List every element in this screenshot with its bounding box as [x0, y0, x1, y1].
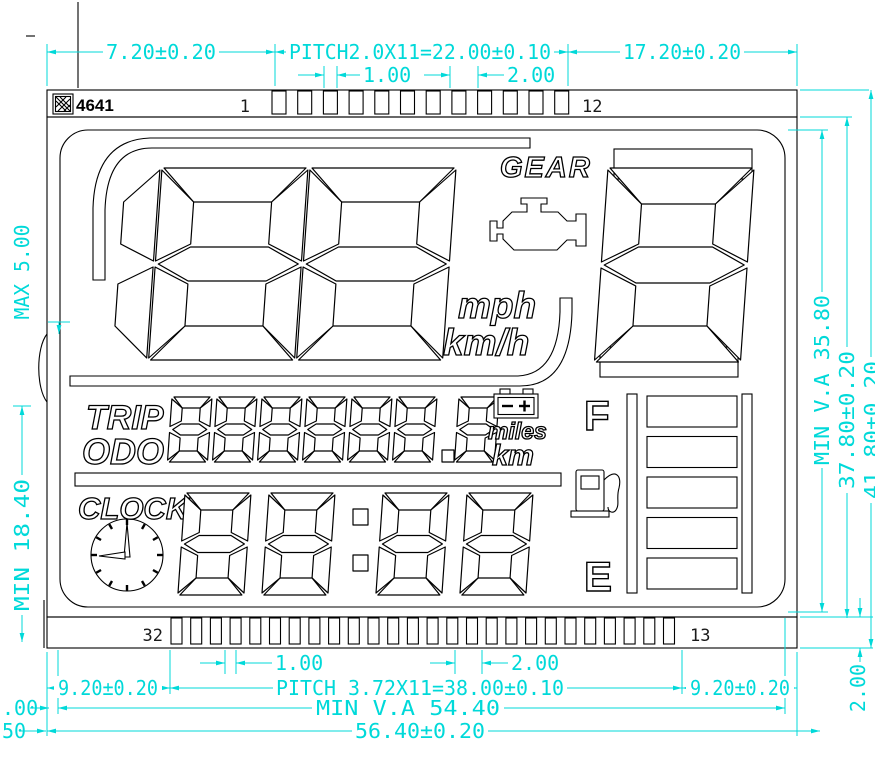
connector-pad — [407, 618, 418, 644]
fuel-rail-right — [742, 394, 752, 593]
seven-segment-digit — [347, 397, 392, 462]
connector-pad — [565, 618, 576, 644]
segment — [157, 247, 299, 281]
segment — [184, 536, 245, 553]
clock-tick — [109, 581, 112, 586]
unit-km-label: km — [492, 440, 534, 472]
connector-pad — [478, 91, 492, 114]
connector-pad — [323, 91, 337, 114]
seven-segment-digit — [257, 397, 302, 462]
dim-left-min: MIN 18.40 — [10, 475, 34, 615]
fuel-bar — [647, 477, 737, 508]
dim-top-pad-pitch: 2.00 — [507, 63, 555, 87]
dim-right-va: MIN V.A 35.80 — [810, 292, 834, 468]
colon-dot — [353, 555, 368, 571]
fuel-gauge: F E — [571, 392, 752, 600]
bottom-pin-row: 32 13 — [143, 618, 711, 646]
frame-remnant — [26, 2, 78, 88]
connector-pad — [230, 618, 241, 644]
seven-segment-digit — [392, 397, 437, 462]
dim-bottom-left-margin: 9.20±0.20 — [54, 676, 162, 700]
odo-label: ODO — [82, 431, 164, 472]
dim-bottom-right-margin: 9.20±0.20 — [686, 676, 794, 700]
seven-segment-digit — [262, 493, 335, 595]
fuel-full-label: F — [584, 392, 610, 439]
connector-pad — [349, 91, 363, 114]
pin-number-32: 32 — [143, 626, 163, 646]
connector-pad — [401, 91, 415, 114]
divider-bar — [75, 473, 561, 486]
odometer-digits — [167, 397, 499, 462]
fuel-bars — [647, 396, 737, 589]
decimal-point — [442, 450, 454, 462]
segment — [119, 170, 159, 261]
svg-text:MIN V.A 35.80: MIN V.A 35.80 — [810, 295, 834, 465]
connector-pad — [555, 91, 569, 114]
connector-pad — [503, 91, 517, 114]
svg-text:MAX 5.00: MAX 5.00 — [10, 225, 34, 320]
svg-text:17.20±0.20: 17.20±0.20 — [623, 40, 741, 64]
seven-segment-digit — [460, 493, 533, 595]
svg-text:PITCH2.0X11=22.00±0.10: PITCH2.0X11=22.00±0.10 — [289, 40, 551, 64]
connector-pad — [368, 618, 379, 644]
engine-warning-icon — [490, 198, 586, 250]
dim-bottom-pad-width: 1.00 — [275, 651, 323, 675]
connector-pad — [529, 91, 543, 114]
gear-label: GEAR — [500, 152, 592, 184]
dim-bottom-pad-pitch: 2.00 — [511, 651, 559, 675]
clock-tick — [153, 537, 158, 540]
seven-segment-digit — [302, 397, 347, 462]
segment — [382, 536, 443, 553]
dim-bottom-overall: 56.40±0.20 — [352, 719, 488, 743]
clock-label: CLOCK — [78, 491, 191, 526]
connector-pad — [526, 618, 537, 644]
connector-pad — [270, 618, 281, 644]
connector-pad — [447, 618, 458, 644]
connector-pad — [289, 618, 300, 644]
svg-text:2.00: 2.00 — [846, 664, 870, 712]
dim-top-right: 17.20±0.20 — [620, 40, 744, 64]
connector-pad — [388, 618, 399, 644]
unit-kmh-label: km/h — [443, 322, 529, 363]
connector-pad — [452, 91, 466, 114]
seven-segment-digit — [167, 397, 212, 462]
segment — [603, 247, 746, 283]
speed-digits — [113, 168, 456, 360]
svg-text:56.40±0.20: 56.40±0.20 — [355, 719, 485, 743]
connector-pad — [171, 618, 182, 644]
battery-icon — [494, 389, 538, 418]
dim-left-max: MAX 5.00 — [10, 222, 34, 322]
connector-pad — [427, 618, 438, 644]
clock-icon — [91, 519, 163, 591]
connector-pad — [426, 91, 440, 114]
seven-segment-digit — [149, 168, 308, 360]
connector-pad — [191, 618, 202, 644]
dim-right-overall: 41.80±0.20 — [860, 357, 875, 503]
glass-side-bump — [39, 334, 47, 402]
dim-right-pin-strip: 2.00 — [846, 662, 870, 714]
bottom-connector-pads — [171, 618, 675, 644]
part-number-label: 4641 — [76, 96, 114, 115]
fuel-empty-label: E — [584, 553, 612, 600]
dim-right-glass: 37.80±0.20 — [835, 347, 859, 493]
hatch-icon — [53, 94, 73, 114]
dim-cut-fragment-2: 50 — [2, 719, 26, 743]
dim-top-left: 7.20±0.20 — [103, 40, 219, 64]
segment — [262, 424, 297, 435]
top-pin-row: 4641 1 12 — [53, 91, 602, 117]
dim-bottom-va: MIN V.A 54.40 — [312, 696, 504, 720]
clock-tick — [96, 537, 101, 540]
dim-cut-fragment-1: .00 — [2, 696, 38, 720]
clock-tick — [153, 570, 158, 573]
connector-pad — [272, 91, 286, 114]
lcd-drawing-page: 4641 1 12 32 13 GEAR mph km/h TRIP ODO m — [0, 0, 875, 778]
dim-top-pad-width: 1.00 — [363, 63, 411, 87]
top-connector-pads — [272, 91, 569, 114]
connector-pad — [486, 618, 497, 644]
connector-pad — [250, 618, 261, 644]
connector-pad — [644, 618, 655, 644]
segment — [268, 536, 329, 553]
seven-segment-digit — [212, 397, 257, 462]
connector-pad — [298, 91, 312, 114]
gear-indicator — [594, 149, 754, 377]
connector-pad — [210, 618, 221, 644]
connector-pad — [467, 618, 478, 644]
connector-pad — [604, 618, 615, 644]
svg-text:41.80±0.20: 41.80±0.20 — [860, 361, 875, 499]
connector-pad — [624, 618, 635, 644]
fuel-bar — [647, 518, 737, 549]
connector-pad — [309, 618, 320, 644]
connector-pad — [329, 618, 340, 644]
fuel-pump-icon — [571, 470, 620, 517]
segment — [397, 424, 432, 435]
pin-number-1: 1 — [240, 97, 250, 117]
svg-text:MIN 18.40: MIN 18.40 — [10, 479, 34, 611]
clock-tick — [142, 581, 145, 586]
seven-segment-digit — [178, 493, 251, 595]
segment — [172, 424, 207, 435]
connector-pad — [348, 618, 359, 644]
colon-dot — [353, 509, 368, 525]
connector-pad — [585, 618, 596, 644]
svg-text:9.20±0.20: 9.20±0.20 — [58, 676, 158, 700]
pin-number-13: 13 — [690, 626, 710, 646]
fuel-bar — [647, 396, 737, 427]
seven-segment-digit — [376, 493, 449, 595]
connector-pad — [506, 618, 517, 644]
clock-hour-hand — [99, 552, 125, 559]
clock-tick — [96, 570, 101, 573]
clock-digits — [178, 493, 533, 595]
fuel-bar — [647, 437, 737, 468]
connector-pad — [664, 618, 675, 644]
fuel-bar — [647, 558, 737, 589]
unit-mph-label: mph — [458, 285, 536, 326]
segment — [466, 536, 527, 553]
segment — [305, 247, 447, 281]
connector-pad — [375, 91, 389, 114]
lcd-panel-drawing: 4641 1 12 32 13 GEAR mph km/h TRIP ODO m — [0, 0, 875, 778]
fuel-rail-left — [627, 394, 637, 593]
segment — [217, 424, 252, 435]
seven-segment-digit — [594, 168, 754, 362]
segment — [113, 267, 153, 358]
segment — [352, 424, 387, 435]
svg-text:37.80±0.20: 37.80±0.20 — [835, 351, 859, 489]
svg-text:7.20±0.20: 7.20±0.20 — [106, 40, 216, 64]
seven-segment-digit — [297, 168, 456, 360]
svg-text:9.20±0.20: 9.20±0.20 — [690, 676, 790, 700]
segment — [307, 424, 342, 435]
svg-text:MIN V.A 54.40: MIN V.A 54.40 — [316, 696, 500, 720]
gear-digit — [594, 168, 754, 362]
dim-top-pitch: PITCH2.0X11=22.00±0.10 — [286, 40, 554, 64]
pin-number-12: 12 — [582, 97, 602, 117]
connector-pad — [545, 618, 556, 644]
